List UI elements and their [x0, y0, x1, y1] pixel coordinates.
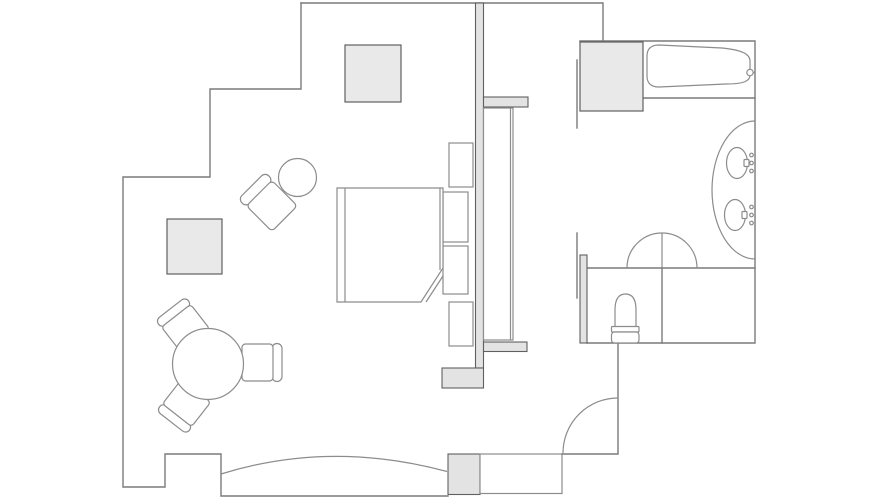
toilet-bowl: [615, 294, 636, 327]
bathtub: [647, 45, 750, 87]
entry-door-swing-arc: [563, 398, 618, 453]
floor-plan-drawing: [0, 0, 890, 500]
entry-vestibule: [448, 343, 618, 495]
headboard-cabinet-upper: [449, 143, 473, 187]
round-side-table: [279, 159, 317, 197]
floor-plan-page: [0, 0, 890, 500]
pocket-door: [580, 255, 587, 343]
shower-closet-cabinet: [580, 42, 643, 111]
cabinet-square-top: [345, 45, 401, 102]
bow-window-arc: [221, 456, 447, 474]
bedroom-furniture: [337, 143, 473, 346]
main-partition-wall-foot: [442, 368, 484, 388]
double-bed: [337, 188, 443, 302]
wardrobe-body: [484, 108, 514, 340]
wardrobe-closet: [484, 108, 514, 340]
entry-threshold-box: [480, 454, 562, 494]
chair-seat: [242, 344, 273, 381]
nightstand-upper: [443, 192, 468, 242]
headboard-cabinet-lower: [449, 302, 473, 346]
toilet-seat-band: [612, 327, 640, 333]
round-dining-table: [173, 329, 244, 400]
vanity-counter: [712, 121, 755, 259]
bathroom-fixtures: [580, 42, 755, 343]
exterior-wall-top: [301, 3, 603, 41]
nightstand-lower: [443, 246, 468, 294]
cabinet-square-left: [167, 219, 222, 274]
main-partition-wall: [476, 3, 484, 368]
closet-stub-wall-bottom: [484, 342, 528, 352]
closet-stub-wall-top: [484, 97, 529, 107]
entry-wall-pier: [448, 454, 480, 495]
toilet-tank: [612, 332, 640, 343]
bathtub-faucet-icon: [747, 69, 753, 75]
dining-chair-2: [242, 344, 282, 382]
toilet: [612, 294, 640, 343]
